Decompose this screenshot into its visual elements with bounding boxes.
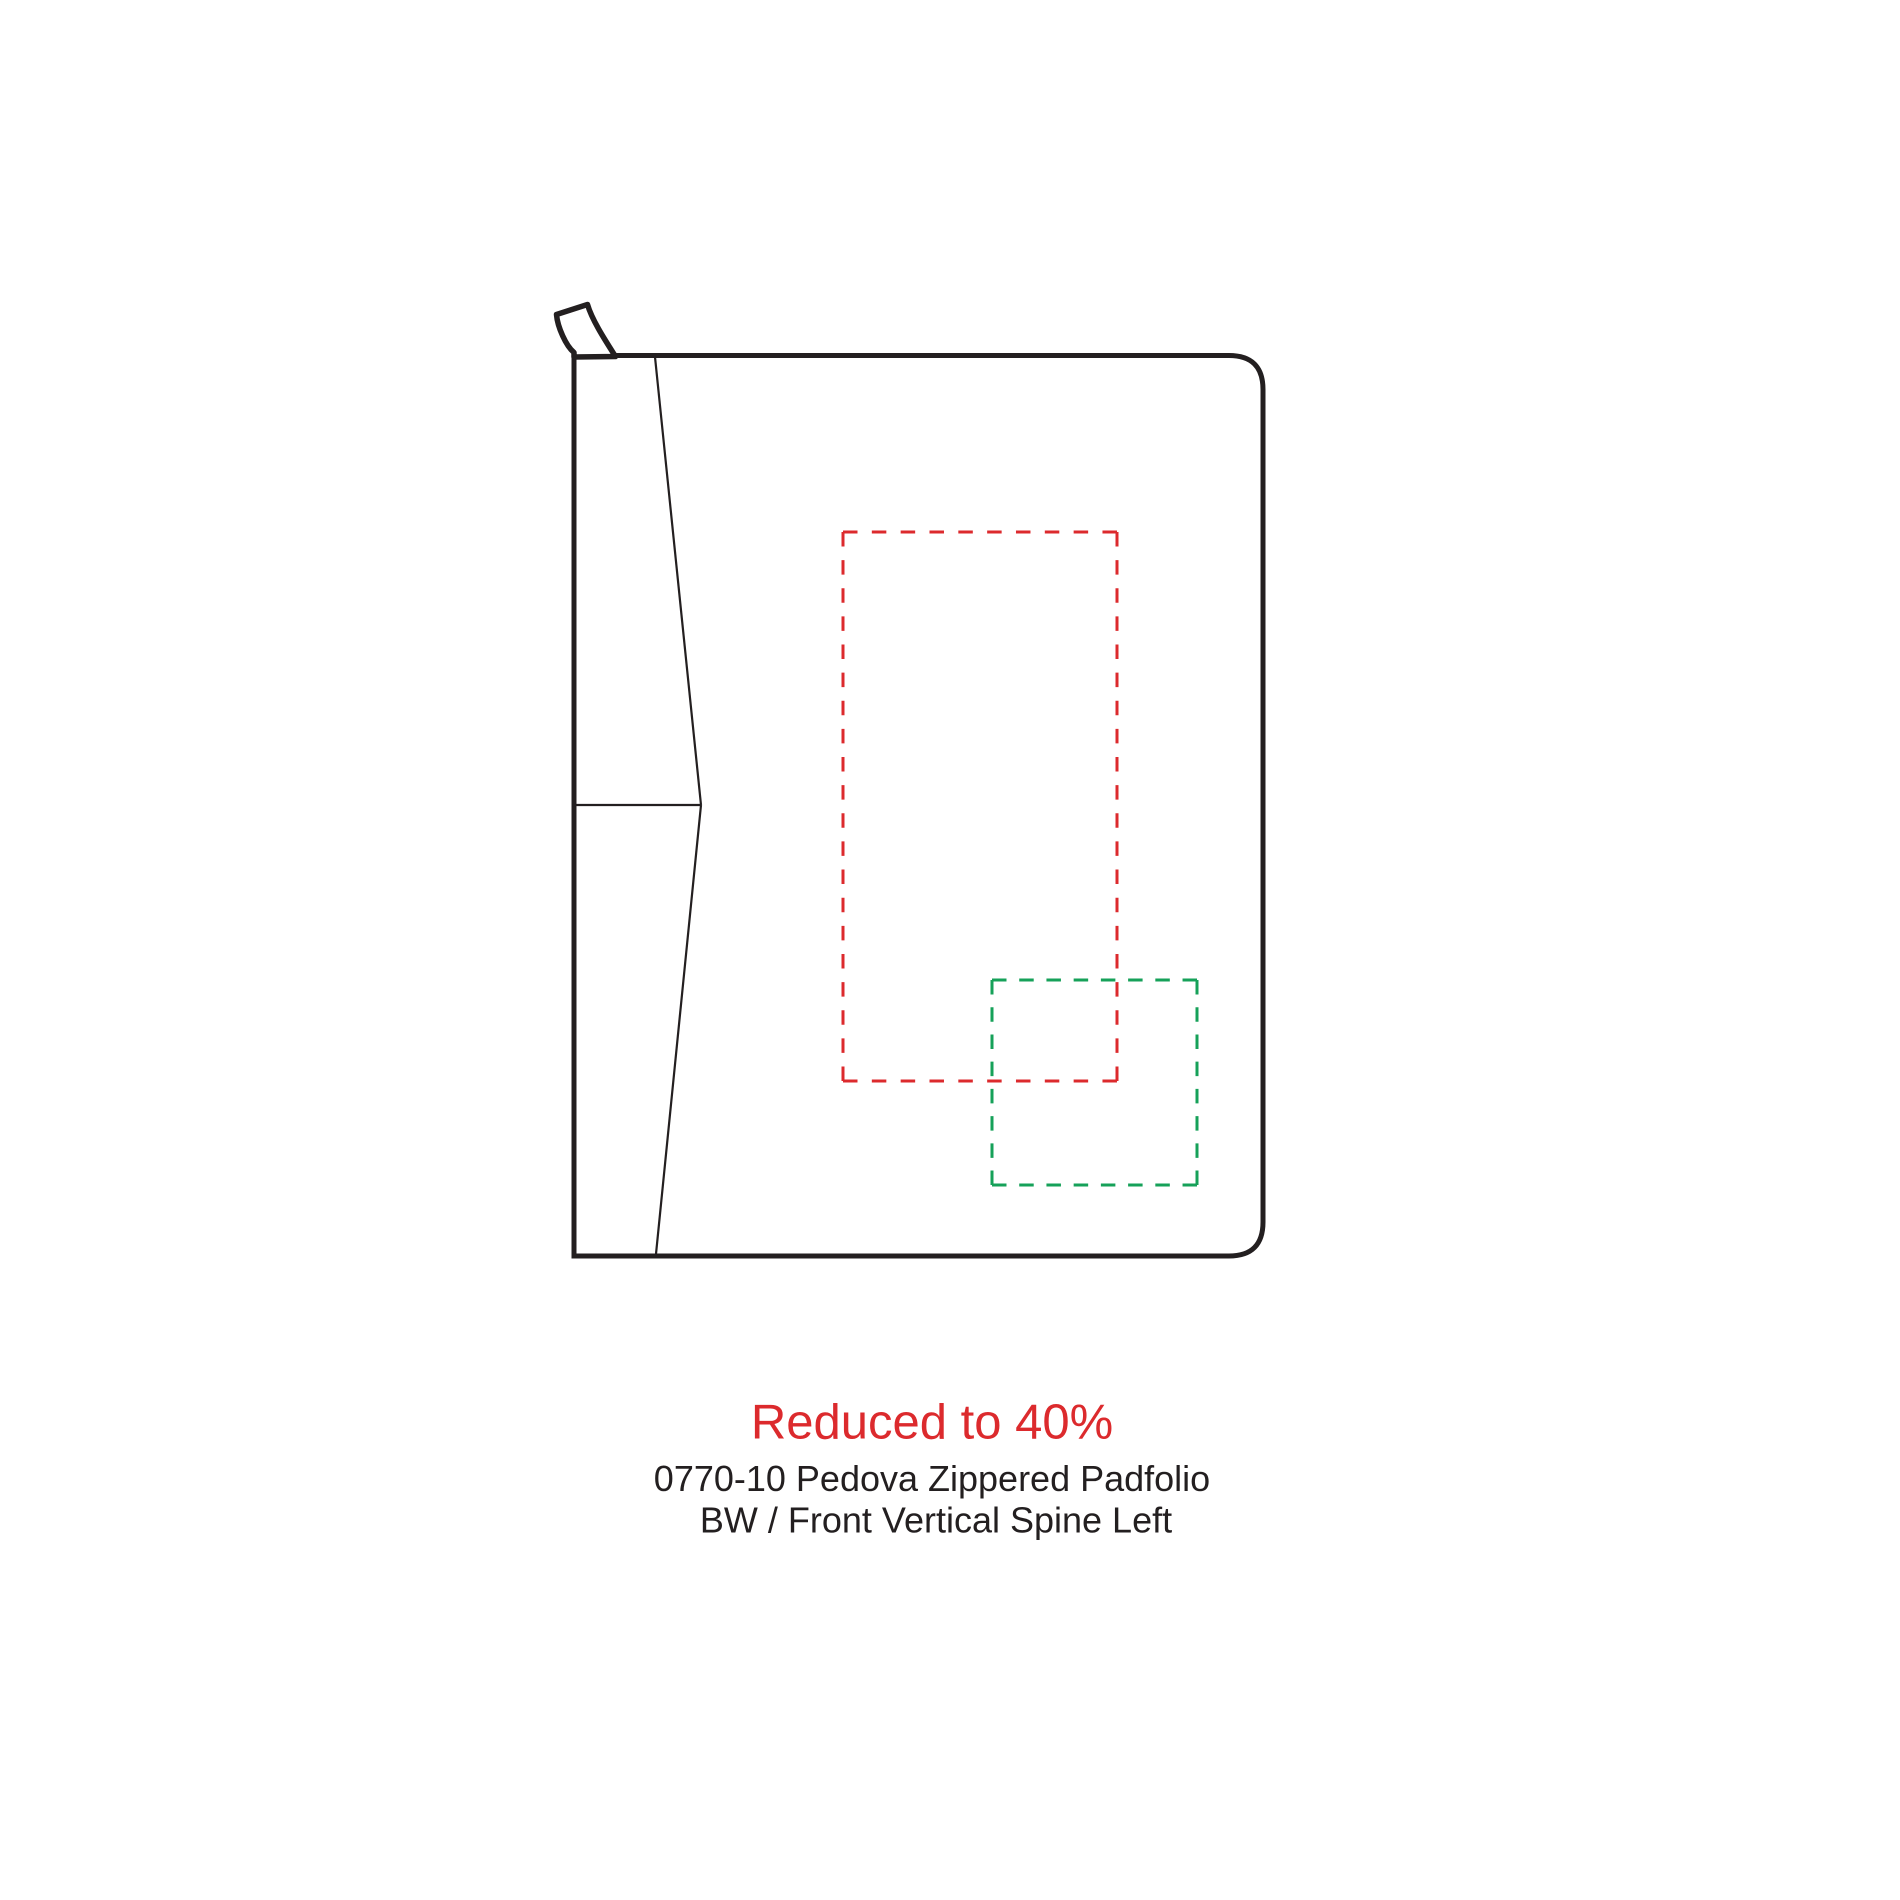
svg-text:0770-10 Pedova Zippered Padfol: 0770-10 Pedova Zippered Padfolio [654,1458,1210,1499]
svg-text:Reduced to 40%: Reduced to 40% [751,1396,1113,1450]
svg-text:BW / Front Vertical Spine Left: BW / Front Vertical Spine Left [700,1500,1172,1541]
